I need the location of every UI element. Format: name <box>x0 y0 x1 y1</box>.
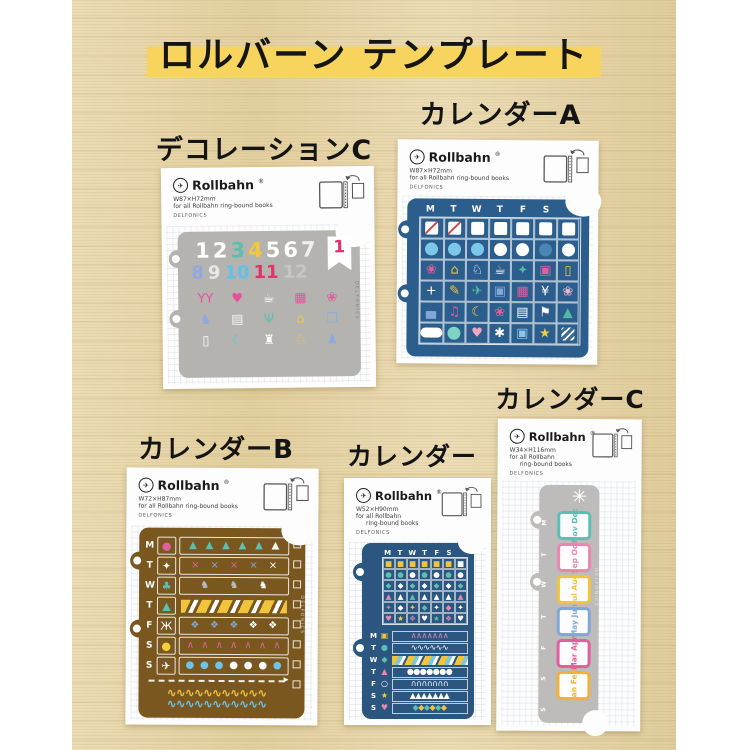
shape-glyph: ■ <box>421 560 428 568</box>
tab-hole <box>133 557 141 565</box>
cutlery-icon: Ψ <box>253 312 285 327</box>
weekday-letter: T <box>145 601 154 611</box>
bouquet-cell: ❀ <box>419 259 443 280</box>
mini-shape-cell: ◆ <box>419 580 431 591</box>
pattern-row: T▲ <box>145 596 289 617</box>
cake-icon: ▦ <box>516 285 528 298</box>
mug-icon: ☕ <box>494 263 506 276</box>
mini-shape-cell: ♥ <box>383 613 395 624</box>
weekday-letter: F <box>431 549 443 557</box>
house-icon: ⌂ <box>451 263 459 276</box>
shape-glyph: ● <box>397 571 404 579</box>
binding-tab <box>130 552 143 570</box>
calendar-a-stencil: MTWTFS ❀⌂♘☕✦▣▯+✎✈▣▦¥❀▄♫☾❀▤⚑▲♥✱▣★ <box>406 198 589 357</box>
pattern-glyph: ∧ <box>273 641 280 651</box>
book-icon: ▤ <box>516 306 528 319</box>
pattern-rows: M●▲▲▲▲▲▲T✦×××××W♣♞♞♞T▲FЖ❖❖❖❖❖S●∧∧∧∧∧∧∧S✈… <box>145 536 290 677</box>
cat-row: ♞♞♞ <box>179 577 289 596</box>
book-cell: ▤ <box>511 302 534 323</box>
desc-text-2: ring-bound books <box>510 461 634 469</box>
stencil-edge-text: DELFONICS <box>354 281 359 320</box>
pattern-row: T●∿∿∿∿∿∿ <box>370 642 468 654</box>
date-square-cell <box>512 218 535 239</box>
pattern-glyph: ∧ <box>216 641 223 651</box>
pattern-glyph: × <box>211 561 219 571</box>
mini-shape-cell: ◆ <box>443 602 455 613</box>
weekday-letter: T <box>394 549 406 557</box>
rollbahn-logo: ✈ <box>510 429 525 444</box>
weekday-letter: S <box>145 661 154 671</box>
circle-cutout <box>448 326 461 339</box>
weekday-letter: T <box>442 204 465 214</box>
pattern-glyph: ♞ <box>230 581 239 591</box>
product-photo-canvas: ロルバーン テンプレート デコレーションC カレンダーA カレンダーC カレンダ… <box>0 0 750 750</box>
mug-cell: ☕ <box>489 259 512 280</box>
checked-square-cell <box>444 217 467 238</box>
mini-shape-cell: ◆ <box>443 580 455 591</box>
triangle-strip: ▲▲▲▲▲▲▲ <box>392 691 468 702</box>
date-circle-cell <box>419 238 443 259</box>
mini-shape-cell: ◆ <box>395 602 407 613</box>
tab-hole <box>133 625 141 633</box>
square-cutout <box>562 222 575 235</box>
mini-shape-cell: ▲ <box>383 591 395 602</box>
shape-glyph: ● <box>421 571 428 579</box>
circle-cutout <box>471 242 484 255</box>
binding-tab <box>130 620 143 638</box>
lemon-icon: ● <box>157 637 176 655</box>
date-circle-cell <box>557 239 580 260</box>
mini-calendar-grid: ■■■■■■■●●●●●●●◆◆◆◆◆◆◆▲▲▲▲▲▲▲✦◆✦◆✦◆✦♥★❖♥★… <box>382 557 468 625</box>
notebook-diagram-icon <box>261 475 311 513</box>
maker-text: DELFONICS <box>138 513 310 520</box>
notebook-diagram-icon <box>541 147 591 185</box>
rollbahn-logo: ✈ <box>356 488 371 503</box>
pattern-glyph: ∧ <box>201 641 208 651</box>
pattern-glyph: ● <box>258 661 267 671</box>
square-cutout <box>471 221 484 234</box>
birthday-cake-icon: ▦ <box>284 291 316 306</box>
month-block: Jan Feb <box>556 670 590 699</box>
maker-text: DELFONICS <box>510 471 634 478</box>
decoration-c-stencil: 1234567 89101112 1 YY♥☕▦❀♞▤Ψ⌂❐▯☾♜♘♟ DELF… <box>177 230 361 378</box>
maker-text: DELFONICS <box>409 184 590 191</box>
shape-glyph: ★ <box>397 615 404 623</box>
heart-lead-icon: ♥ <box>380 704 390 712</box>
shape-glyph: ♥ <box>421 615 428 623</box>
square-cutout <box>494 221 507 234</box>
shape-glyph: ◆ <box>434 582 440 590</box>
shape-glyph: ★ <box>433 615 440 623</box>
shape-glyph: ◆ <box>386 582 392 590</box>
weekday-letter: T <box>541 550 548 557</box>
runner-cell: ✦ <box>511 260 534 281</box>
pattern-row: M▣∧∧∧∧∧∧∧ <box>370 630 468 642</box>
pattern-glyph: ▲ <box>272 541 280 551</box>
house-icon: ⌂ <box>285 312 317 327</box>
date-square-cell <box>534 218 557 239</box>
pattern-glyph: ❖ <box>229 621 238 631</box>
shape-glyph: ● <box>433 571 440 579</box>
butterfly-icon: Ж <box>157 617 176 635</box>
beer-icon: ▯ <box>564 264 571 277</box>
binding-tab <box>353 639 366 657</box>
title-wrap: ロルバーン テンプレート <box>72 24 676 80</box>
star-lead-icon: ★ <box>380 692 390 700</box>
weekday-letter: W <box>145 581 154 591</box>
tab-hole <box>356 644 364 652</box>
month-block: Mar Apr <box>557 638 591 667</box>
package-header: ✈ Rollbahn ® W72×H87mm for all Rollbahn … <box>126 467 318 520</box>
mini-shape-cell: ✦ <box>455 602 467 613</box>
pattern-glyph: ● <box>273 661 282 671</box>
pattern-glyph: ∧ <box>259 641 266 651</box>
brand-name: Rollbahn <box>158 478 220 493</box>
pattern-row: T✦××××× <box>145 556 289 577</box>
first-aid-cross-icon: + <box>426 284 437 297</box>
mini-shape-cell: ✦ <box>383 602 395 613</box>
shape-glyph: ■ <box>445 560 452 568</box>
weekday-letter: F <box>145 621 154 631</box>
circle-cutout <box>539 243 552 256</box>
dot-wave-row: ●●●●●●● <box>179 657 289 676</box>
pattern-row: F○∩∩∩∩∩∩∩ <box>370 678 468 690</box>
corner-notch <box>458 530 486 554</box>
weekday-letter: W <box>465 204 488 214</box>
starburst-cell: ✱ <box>488 322 511 343</box>
shape-glyph: ▲ <box>446 593 452 601</box>
stencil-number: 4 <box>248 239 263 261</box>
weekday-letter: S <box>534 205 557 215</box>
shape-glyph: ◆ <box>410 582 416 590</box>
pattern-glyph: ∧ <box>244 641 251 651</box>
month-label: May Jun <box>569 604 578 637</box>
pattern-glyph: ♞ <box>259 581 268 591</box>
first-aid-cross-cell: + <box>419 280 443 301</box>
moon-icon: ☾ <box>222 333 254 348</box>
binding-tab <box>353 563 366 581</box>
brand-name: Rollbahn <box>375 489 432 503</box>
shape-glyph: ■ <box>397 560 404 568</box>
airplane-icon: ✈ <box>472 284 483 297</box>
tab-hole <box>172 315 180 323</box>
tab-hole <box>401 225 409 233</box>
label-decoration-c: デコレーションC <box>148 128 380 167</box>
binding-tab <box>168 250 181 268</box>
pattern-rows: M▣∧∧∧∧∧∧∧T●∿∿∿∿∿∿W◆T▲●●●●●●●F○∩∩∩∩∩∩∩S★▲… <box>370 630 468 714</box>
brand-name: Rollbahn <box>192 177 254 193</box>
sheep-cell: ♘ <box>466 259 489 280</box>
bottom-patterns: ▸ ∿∿∿∿∿∿∿∿∿∿∿ ∿∿∿∿∿∿∿∿∿∿∿ <box>144 680 288 711</box>
stencil-number: 7 <box>301 239 316 261</box>
corner-notch <box>565 186 601 216</box>
moon-icon: ☾ <box>471 305 483 318</box>
month-block: Sep Oct <box>557 542 591 571</box>
month-label: Nov Dec <box>570 508 579 543</box>
pattern-row: W◆ <box>370 654 468 666</box>
music-notes-cell: ♫ <box>443 301 466 322</box>
notebook-diagram-icon <box>317 173 367 212</box>
stencil-number: 5 <box>266 239 281 261</box>
toast-glasses-icon: YY <box>190 291 222 306</box>
shape-glyph: ▲ <box>458 593 464 601</box>
package-header: ✈ Rollbahn ® W87×H72mm for all Rollbahn … <box>397 139 598 192</box>
shape-glyph: ● <box>385 571 392 579</box>
dog-icon: ♘ <box>285 333 317 348</box>
shopping-cart-icon: ❐ <box>316 311 348 326</box>
mini-shape-cell: ✦ <box>407 602 419 613</box>
pattern-glyph: ▲ <box>206 541 214 551</box>
mini-shape-cell: ■ <box>431 558 443 569</box>
bag-cell: ▣ <box>534 260 557 281</box>
checkbox-cutout <box>293 540 301 548</box>
pattern-glyph: ❖ <box>190 621 199 631</box>
month-block: May Jun <box>557 606 591 635</box>
shape-glyph: ● <box>457 571 464 579</box>
heart-cell: ♥ <box>466 322 489 343</box>
airplane-icon: ✈ <box>157 657 176 675</box>
tab-hole <box>400 289 408 297</box>
shape-glyph: ✦ <box>409 604 415 612</box>
label-calendar-a: カレンダーA <box>418 93 583 132</box>
weekday-letter: S <box>540 705 547 712</box>
mini-shape-cell: ❖ <box>443 613 455 624</box>
mini-shape-cell: ■ <box>395 558 407 569</box>
sheep-icon: ♘ <box>471 263 483 276</box>
triangle-row: ▲▲▲▲▲▲ <box>179 537 289 556</box>
checkbox-cutout <box>293 680 301 688</box>
rabbit-icon: ♟ <box>316 332 348 347</box>
pattern-glyph: × <box>191 561 199 571</box>
bouquet-icon: ❀ <box>426 263 437 276</box>
mini-shape-cell: ● <box>383 569 395 580</box>
mini-shape-cell: ● <box>431 569 443 580</box>
mini-shape-cell: ▲ <box>431 591 443 602</box>
gift-icon: ▣ <box>494 284 506 297</box>
arrow-head: ▸ <box>284 674 289 685</box>
shape-glyph: ♥ <box>457 615 464 623</box>
checked-square-cell <box>420 217 444 238</box>
shape-glyph: ✦ <box>385 604 391 612</box>
mini-shape-cell: ■ <box>443 558 455 569</box>
stencil-number: 6 <box>283 239 298 261</box>
circle-shape-cell <box>443 322 466 343</box>
pattern-glyph: × <box>230 561 238 571</box>
circle-cutout <box>425 242 438 255</box>
circle-cutout <box>562 243 575 256</box>
checkbox-cutout <box>293 640 301 648</box>
stencil-edge-text: DELFONICS <box>593 568 598 607</box>
star-cell: ★ <box>534 323 557 344</box>
mini-shape-cell: ▲ <box>455 591 467 602</box>
date-square-cell <box>557 218 580 239</box>
pattern-row: S✈●●●●●●● <box>145 656 289 677</box>
pattern-glyph: ▲ <box>222 541 230 551</box>
weekday-letter: M <box>419 204 442 214</box>
mini-shape-cell: ◆ <box>455 580 467 591</box>
diamond-lead-icon: ◆ <box>380 656 390 664</box>
calendar-a-package: ✈ Rollbahn ® W87×H72mm for all Rollbahn … <box>396 139 599 364</box>
month-label: Sep Oct <box>570 541 579 574</box>
shape-glyph: ● <box>409 571 416 579</box>
gift-cell: ▣ <box>488 280 511 301</box>
weekday-letter: S <box>443 549 455 557</box>
pattern-glyph: ♞ <box>200 581 209 591</box>
date-circle-cell <box>443 238 466 259</box>
pattern-glyph: ❖ <box>249 621 258 631</box>
month-block: Jul Aug <box>557 574 591 603</box>
brand-name: Rollbahn <box>429 150 491 165</box>
pencil-cell: ✎ <box>443 280 466 301</box>
mini-shape-cell: ▲ <box>407 591 419 602</box>
square-cutout <box>539 222 552 235</box>
heart-icon: ♥ <box>471 326 483 339</box>
pattern-glyph: ● <box>185 661 194 671</box>
mini-shape-cell: ◆ <box>395 580 407 591</box>
stencil-number: 12 <box>283 263 308 283</box>
shape-glyph: ◆ <box>458 582 464 590</box>
mini-shape-cell: ★ <box>431 613 443 624</box>
pencil-icon: ✎ <box>449 284 460 297</box>
moon-cell: ☾ <box>466 301 489 322</box>
weekday-letter: T <box>488 204 511 214</box>
calendar-d-stencil: MTWTFS ■■■■■■■●●●●●●●◆◆◆◆◆◆◆▲▲▲▲▲▲▲✦◆✦◆✦… <box>362 543 474 719</box>
weekday-letter: S <box>540 674 547 681</box>
weekday-letter: T <box>145 561 154 571</box>
weekday-letter: M <box>370 632 378 640</box>
clover-icon: ♣ <box>157 577 176 595</box>
stencil-number: 8 <box>191 264 204 284</box>
weekday-letter: T <box>370 644 378 652</box>
pattern-glyph: × <box>269 561 277 571</box>
dashed-arrow-line: ▸ <box>149 680 285 689</box>
mini-shape-cell: ● <box>443 569 455 580</box>
grid-paper: MTWTFS ■■■■■■■●●●●●●●◆◆◆◆◆◆◆▲▲▲▲▲▲▲✦◆✦◆✦… <box>349 542 486 720</box>
music-notes-icon: ♫ <box>449 305 461 318</box>
date-circle-cell <box>511 239 534 260</box>
month-label: Jul Aug <box>569 574 578 604</box>
shape-glyph: ■ <box>409 560 416 568</box>
weekday-letter: F <box>511 205 534 215</box>
mini-shape-cell: ● <box>455 569 467 580</box>
mini-shape-cell: ❖ <box>407 613 419 624</box>
wave-strip: ∿∿∿∿∿∿ <box>392 643 468 654</box>
car-cell: ▄ <box>419 301 443 322</box>
rollbahn-logo: ✈ <box>173 178 188 193</box>
weekday-letter: M <box>382 549 394 557</box>
pattern-row: M●▲▲▲▲▲▲ <box>145 536 289 557</box>
calendar-b-package: ✈ Rollbahn ® W72×H87mm for all Rollbahn … <box>125 467 318 725</box>
bird-icon: ✦ <box>157 557 176 575</box>
weekday-letter: W <box>406 549 418 557</box>
circle-cutout <box>516 243 529 256</box>
tree-icon: ▲ <box>563 306 573 319</box>
mini-shape-cell: ▲ <box>443 591 455 602</box>
mini-shape-cell: ● <box>419 569 431 580</box>
weekday-header: MTWTFS <box>419 204 581 215</box>
beer-cell: ▯ <box>557 260 580 281</box>
shape-glyph: ✦ <box>433 604 439 612</box>
diamond-strip: ◆◆◆◆◆◆ <box>392 703 468 714</box>
trash-can-icon: ▯ <box>190 333 222 348</box>
shape-glyph: ▲ <box>386 593 392 601</box>
weekday-letter: S <box>145 641 154 651</box>
square-shape-cell: ▣ <box>511 323 534 344</box>
label-calendar-c: カレンダーC <box>490 380 650 416</box>
weekday-header: MTWTFS <box>382 549 468 557</box>
date-circle-cell <box>534 239 557 260</box>
circle-cutout <box>448 242 461 255</box>
shape-glyph: ✦ <box>457 604 463 612</box>
dot-strip: ●●●●●●● <box>392 667 468 678</box>
weekday-letter: S <box>370 704 378 712</box>
shape-glyph: ▲ <box>398 593 404 601</box>
date-square-cell <box>466 217 489 238</box>
shape-glyph: ◆ <box>446 604 452 612</box>
tab-hole <box>171 255 179 263</box>
weekday-letter: M <box>541 519 548 526</box>
binding-tab <box>397 284 410 302</box>
maker-text: DELFONICS <box>173 211 366 219</box>
wave-line-blue: ∿∿∿∿∿∿∿∿∿∿∿ <box>144 699 288 711</box>
package-header: ✈ Rollbahn ® W34×H116mm for all Rollbahn… <box>498 419 642 478</box>
pattern-glyph: ▲ <box>255 541 263 551</box>
tulips-icon: ❀ <box>562 285 573 298</box>
triangle-lead-icon: ▲ <box>380 668 390 676</box>
calendar-c-stencil: ✳ Nov DecSep OctJul AugMay JunMar AprJan… <box>538 484 599 722</box>
starburst-cutout: ✳ <box>571 487 587 508</box>
weekday-letters: MTWTFSS <box>540 518 548 712</box>
shape-glyph: ● <box>445 571 452 579</box>
pattern-glyph: ● <box>215 661 224 671</box>
shape-glyph: ♥ <box>385 615 392 623</box>
weekday-letter: T <box>418 549 430 557</box>
runner-icon: ✦ <box>517 264 528 277</box>
pattern-glyph: ❖ <box>210 621 219 631</box>
pattern-glyph: ● <box>200 661 209 671</box>
shape-glyph: ◆ <box>422 604 428 612</box>
weekday-letter: W <box>370 656 378 664</box>
pattern-glyph: ◆ <box>441 704 447 712</box>
hospital-icon: ♜ <box>253 333 285 348</box>
airplane-cell: ✈ <box>466 280 489 301</box>
stencil-number: 9 <box>208 264 221 284</box>
checkbox-cutout <box>293 560 301 568</box>
pattern-row: T▲●●●●●●● <box>370 666 468 678</box>
mini-shape-cell: ✦ <box>431 602 443 613</box>
yen-sign-cell: ¥ <box>534 281 557 302</box>
mini-shape-cell: ♥ <box>419 613 431 624</box>
weekday-letter: M <box>145 541 154 551</box>
label-calendar-b: カレンダーB <box>136 429 296 466</box>
mini-shape-cell: ■ <box>407 558 419 569</box>
pattern-glyph: ● <box>229 661 238 671</box>
grid-paper: M●▲▲▲▲▲▲T✦×××××W♣♞♞♞T▲FЖ❖❖❖❖❖S●∧∧∧∧∧∧∧S✈… <box>130 526 313 721</box>
tab-hole <box>356 568 364 576</box>
notebook-diagram-icon <box>440 485 484 519</box>
shape-glyph: ❖ <box>445 615 452 623</box>
mini-shape-cell: ▲ <box>419 591 431 602</box>
stencil-number: 1 <box>195 240 210 262</box>
mini-shape-cell: ♥ <box>455 613 467 624</box>
money-icon: ▤ <box>221 312 253 327</box>
stencil-number: 2 <box>213 239 228 261</box>
calendar-c-package: ✈ Rollbahn ® W34×H116mm for all Rollbahn… <box>496 419 642 732</box>
pattern-glyph: ❖ <box>268 621 277 631</box>
registered-mark: ® <box>258 178 264 185</box>
mini-shape-cell: ◆ <box>419 602 431 613</box>
date-circle-cell <box>489 238 512 259</box>
